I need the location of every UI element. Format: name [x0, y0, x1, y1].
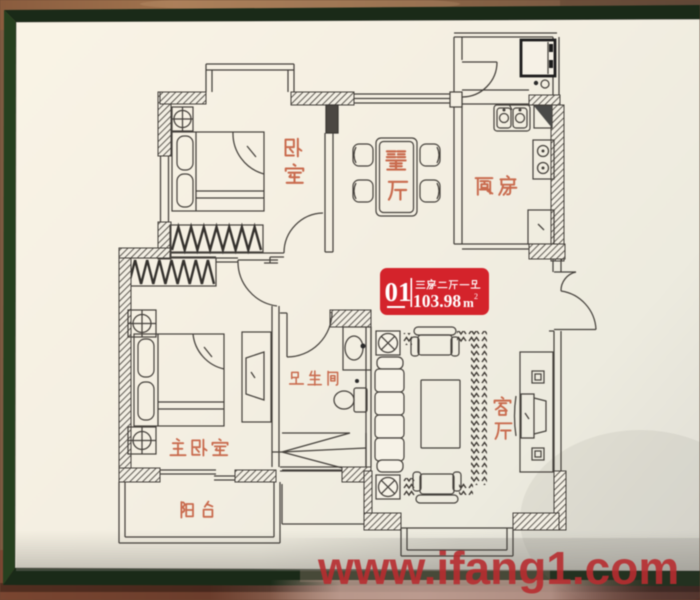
- svg-text:www.ifang1.com: www.ifang1.com: [317, 542, 679, 594]
- svg-text:103.98: 103.98: [413, 291, 461, 311]
- svg-text:2: 2: [474, 292, 478, 301]
- svg-text:01: 01: [385, 277, 412, 307]
- svg-text:m: m: [463, 295, 474, 310]
